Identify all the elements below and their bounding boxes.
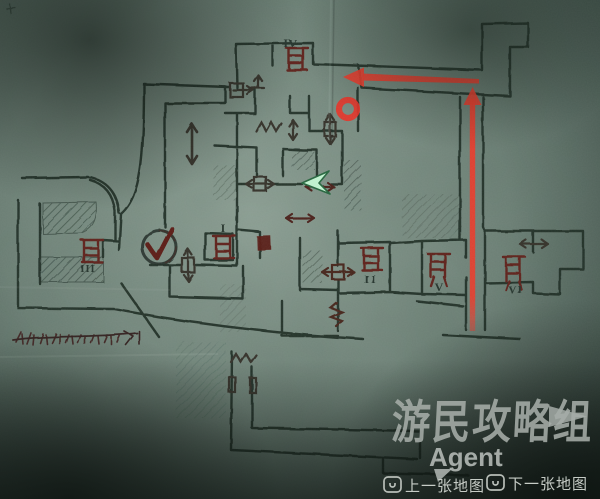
next-map-label: 下一张地图 — [508, 476, 588, 493]
prev-map-label: 上一张地图 — [405, 478, 485, 495]
watermark-subtitle: Agent — [429, 442, 503, 472]
map-canvas: IV I II III V VI — [0, 0, 600, 499]
game-map-screen: IV I II III V VI — [0, 0, 600, 499]
